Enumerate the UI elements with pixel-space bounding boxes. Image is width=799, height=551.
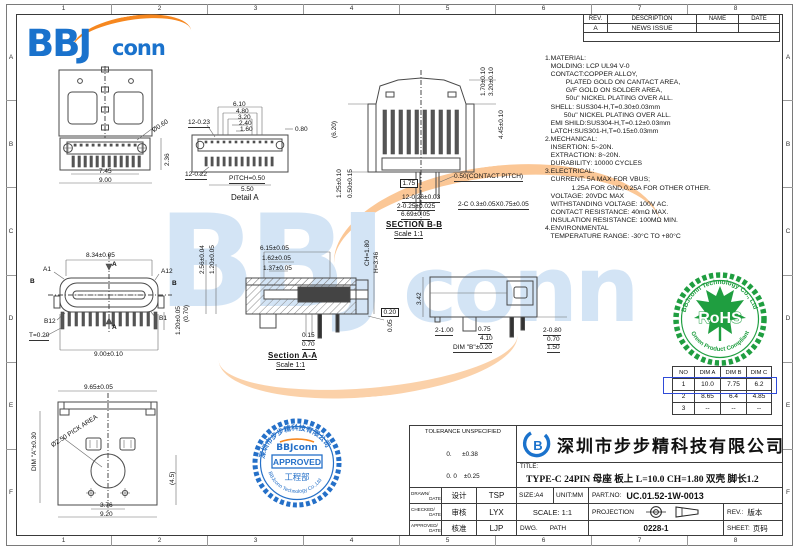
dim-label: 1.20±0.05 bbox=[209, 245, 216, 274]
dim-label: 3.76 bbox=[100, 502, 113, 509]
dim-label: (0.70) bbox=[183, 305, 190, 322]
drawn-name: TSP bbox=[476, 487, 517, 504]
dim-label: 12-0.26±0.03 bbox=[402, 194, 440, 203]
dim-label: 4.45±0.10 bbox=[498, 110, 505, 139]
dim-label: 8.34±0.05 bbox=[86, 252, 115, 259]
logo-bbj-text: BBJ bbox=[26, 22, 90, 65]
drawing-title: TYPE-C 24PIN 母座 板上 L=10.0 CH=1.80 双壳 脚长1… bbox=[526, 471, 759, 485]
view-section-aa: 6.15±0.05 1.62±0.05 1.37±0.05 2.56±0.04 … bbox=[198, 240, 403, 374]
dim-label: 9.65±0.05 bbox=[84, 384, 113, 391]
dim-label: 2.36 bbox=[164, 153, 171, 166]
svg-text:深圳市步步精科技有限公司: 深圳市步步精科技有限公司 bbox=[257, 423, 331, 459]
dim-label: 0.50±0.15 bbox=[347, 169, 354, 198]
dim-label: 0.20 bbox=[381, 308, 399, 317]
rohs-stamp: BBJconn Technology Co., Ltd Green Produc… bbox=[671, 270, 769, 368]
spec-notes: 1.MATERIAL: MOLDING: LCP UL94 V-0 CONTAC… bbox=[545, 55, 783, 241]
approved-stamp: 深圳市步步精科技有限公司 BBJconn Technology Co.,Ltd … bbox=[250, 416, 344, 510]
zone-numbers-top: 12 34 56 78 bbox=[16, 4, 783, 14]
drawn-cn: 设计 bbox=[441, 487, 477, 504]
dim-label: 3.20±0.10 bbox=[488, 67, 495, 96]
dim-label: H=3.46 bbox=[373, 252, 380, 273]
dim-label: 2-1.00 bbox=[435, 327, 453, 336]
checked-cn: 审核 bbox=[441, 503, 477, 521]
dim-label: 1.37±0.05 bbox=[263, 265, 292, 272]
dim-table: NO DIM A DIM B DIM C 1 10.0 7.75 6.2 2 8… bbox=[672, 366, 772, 414]
dim-label: 0.70 bbox=[302, 341, 315, 350]
part-number: UC.01.52-1W-0013 bbox=[626, 491, 703, 501]
dim-label: 12-0.23 bbox=[188, 119, 210, 128]
title-label: TITLE: bbox=[520, 464, 538, 470]
dim-label: 1.50 bbox=[547, 344, 560, 353]
rev-cell: REV.: 版本 bbox=[723, 503, 783, 521]
dim-label: 1.25±0.10 bbox=[336, 169, 343, 198]
dwg-path-cell: DWG. PATH bbox=[516, 520, 589, 536]
dim-label: 0.50(CONTACT PITCH) bbox=[454, 173, 523, 182]
cut-mark: B bbox=[172, 280, 177, 287]
dim-label: 9.20 bbox=[100, 511, 113, 518]
dim-label: 9.00 bbox=[99, 177, 112, 184]
zone-numbers-bottom: 12 34 56 78 bbox=[16, 536, 783, 546]
cut-mark: A bbox=[112, 324, 117, 331]
checked-name: LYX bbox=[476, 503, 517, 521]
approved-label-text: APPROVED bbox=[273, 457, 321, 467]
dim-label: PITCH=0.50 bbox=[229, 175, 265, 184]
section-scale: Scale 1:1 bbox=[394, 231, 423, 239]
dim-label: 6.15±0.05 bbox=[260, 245, 289, 252]
zone-letters-left: AB CD EF bbox=[6, 14, 16, 536]
dim-label: 2-0.80 bbox=[543, 327, 561, 336]
view-detail-a: 6.10 4.80 3.20 2.40 1.60 12-0.23 0.80 12… bbox=[185, 101, 313, 203]
dim-label: 1.60 bbox=[240, 126, 253, 133]
projection-cell: PROJECTION bbox=[588, 503, 724, 521]
dim-label: 3.42 bbox=[416, 292, 423, 305]
view-front: 8.34±0.05 A A1 A12 B B B12 B1 T=0.20 A 9… bbox=[28, 252, 203, 358]
dim-label: 2.56±0.04 bbox=[199, 245, 206, 274]
dim-label: 5.50 bbox=[241, 186, 254, 193]
dim-label: 1.70±0.10 bbox=[480, 67, 487, 96]
dim-label: 2-C 0.3±0.05X0.75±0.05 bbox=[458, 201, 529, 210]
view-bottom: 9.65±0.05 DIM "A"±0.30 Ø2.50 PICK AREA (… bbox=[28, 383, 198, 523]
dim-label: 4.10 bbox=[480, 335, 493, 344]
dim-label: 0.75 bbox=[478, 326, 491, 335]
dim-label: 6.69±0.05 bbox=[401, 211, 430, 220]
view-side: 3.42 2-1.00 0.75 4.10 DIM "B"±0.20 2-0.8… bbox=[415, 263, 575, 355]
svg-text:B: B bbox=[533, 438, 542, 453]
dim-label: 9.00±0.10 bbox=[94, 351, 123, 358]
tolerance-row: 0. ±0.38 bbox=[446, 451, 479, 458]
projection-symbol-icon bbox=[642, 505, 704, 519]
dim-label: 1.62±0.05 bbox=[262, 255, 291, 262]
bbjconn-logo: BBJ conn bbox=[26, 22, 216, 68]
jb-logo-icon: B bbox=[521, 429, 555, 459]
company-name: 深圳市步步精科技有限公司 bbox=[557, 432, 783, 457]
dim-label: CH=1.80 bbox=[364, 240, 371, 266]
rev-table: REV. DESCRIPTION NAME DATE A NEWS ISSUE bbox=[583, 14, 780, 41]
drawing-number-cell: 0228-1 bbox=[588, 520, 724, 536]
drawn-label: DRAWN/DATE bbox=[409, 487, 442, 504]
section-title: SECTION B-B bbox=[386, 221, 442, 229]
section-title: Section A-A bbox=[268, 352, 317, 360]
dim-label: 0.15 bbox=[302, 332, 315, 341]
drawing-sheet: BBJ conn 12 34 56 78 12 34 56 78 AB CD E… bbox=[0, 0, 799, 551]
title-cell: TITLE: TYPE-C 24PIN 母座 板上 L=10.0 CH=1.80… bbox=[516, 462, 783, 488]
scale-cell: SCALE: 1:1 bbox=[516, 503, 589, 521]
dim-label: 12-0.22 bbox=[185, 171, 207, 180]
approved-name: LJP bbox=[476, 520, 517, 536]
cut-mark: A bbox=[112, 261, 117, 268]
view-title: Detail A bbox=[231, 194, 259, 201]
approved-ring-top-text: 深圳市步步精科技有限公司 bbox=[257, 423, 331, 459]
checked-label: CHECKED/DATE bbox=[409, 503, 442, 521]
view-section-bb: 1.70±0.10 3.20±0.10 4.45±0.10 (6.20) 1.2… bbox=[328, 70, 523, 240]
dim-label: (4.5) bbox=[169, 472, 176, 485]
pin-label: B12 bbox=[44, 318, 56, 325]
approved-dept-text: 工程部 bbox=[284, 472, 309, 482]
pin-label: A12 bbox=[161, 268, 173, 275]
sheet-cell: SHEET: 页码 bbox=[723, 520, 783, 536]
approved-label: APPROVED/DATE bbox=[409, 520, 442, 536]
unit-cell: UNIT:MM bbox=[553, 487, 589, 504]
dim-label: DIM "A"±0.30 bbox=[31, 432, 38, 471]
dim-label: 2-0.25±0.025 bbox=[397, 203, 435, 212]
zone-letters-right: AB CD EF bbox=[783, 14, 793, 536]
dim-table-highlight bbox=[663, 377, 777, 394]
tolerance-title: TOLERANCE UNSPECIFIED bbox=[425, 429, 501, 435]
partno-cell: PART.NO: UC.01.52-1W-0013 bbox=[588, 487, 783, 504]
dim-label: T=0.20 bbox=[29, 332, 49, 341]
tolerance-row: 0. 0 ±0.25 bbox=[446, 473, 479, 480]
section-scale: Scale 1:1 bbox=[276, 362, 305, 370]
approved-logo-text: BBJconn bbox=[276, 443, 317, 453]
dim-label: 1.75 bbox=[400, 179, 418, 188]
dim-label: 0.80 bbox=[295, 126, 308, 133]
cut-mark: B bbox=[30, 278, 35, 285]
pin-label: B1 bbox=[159, 315, 167, 322]
dim-label: DIM "B"±0.20 bbox=[453, 344, 492, 353]
dim-label: 0.05 bbox=[387, 319, 394, 332]
rev-empty-row bbox=[583, 32, 780, 42]
pin-label: A1 bbox=[43, 266, 51, 273]
dim-label: 1.20±0.05 bbox=[175, 306, 182, 335]
rohs-center-text: RoHS bbox=[698, 310, 742, 327]
approved-cn: 核准 bbox=[441, 520, 477, 536]
dim-label: 7.45 bbox=[99, 168, 112, 175]
size-cell: SIZE:A4 bbox=[516, 487, 554, 504]
tolerance-block: TOLERANCE UNSPECIFIED 0. ±0.38 0. 0 ±0.2… bbox=[409, 425, 517, 488]
logo-conn-text: conn bbox=[112, 36, 165, 60]
company-cell: B 深圳市步步精科技有限公司 bbox=[516, 425, 783, 463]
dim-label: (6.20) bbox=[331, 121, 338, 138]
